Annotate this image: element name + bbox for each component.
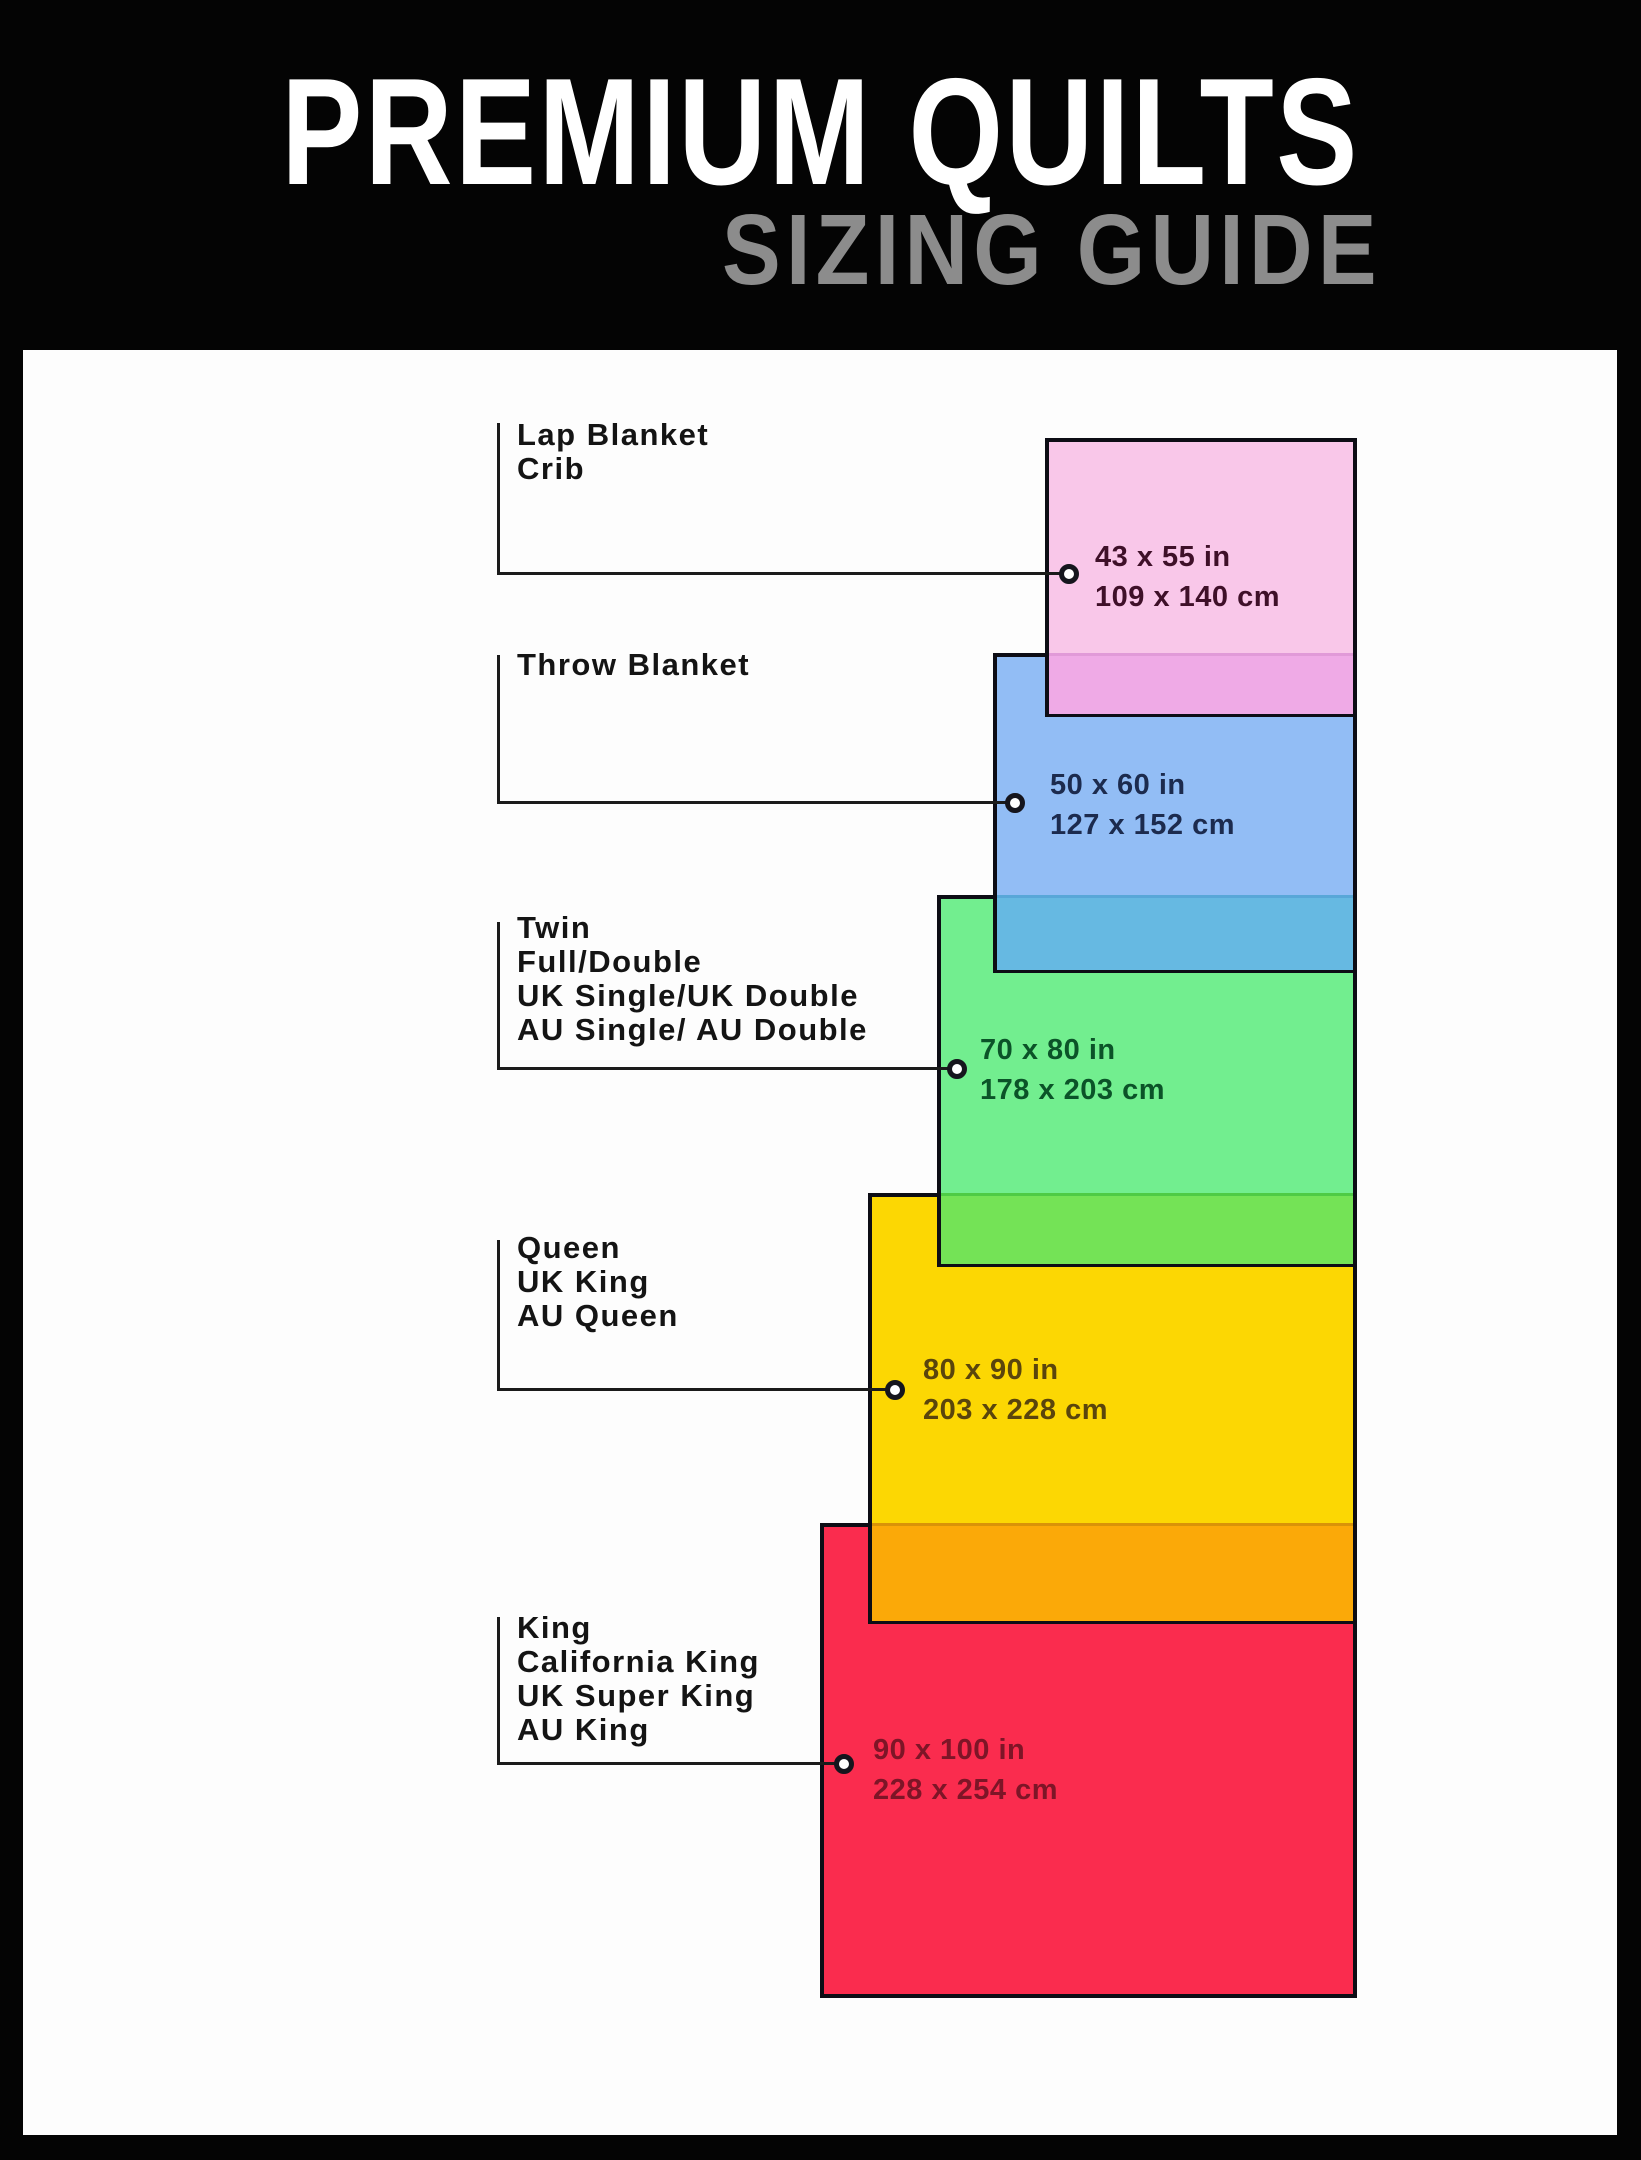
marker-circle-king-california-king: [834, 1754, 854, 1774]
marker-circle-queen-uk-king: [885, 1380, 905, 1400]
overlap-seam-lap-blanket-crib: [1049, 653, 1353, 656]
overlap-seam-queen-uk-king: [872, 1523, 1353, 1526]
size-cm-queen-uk-king: 203 x 228 cm: [923, 1390, 1108, 1430]
size-label-king-california-king: 90 x 100 in228 x 254 cm: [873, 1730, 1058, 1810]
size-inches-throw-blanket: 50 x 60 in: [1050, 765, 1235, 805]
page-subtitle: SIZING GUIDE: [722, 200, 1382, 300]
connector-queen-uk-king: [497, 1240, 886, 1391]
overlap-strip-queen-uk-king: [872, 1523, 1353, 1621]
connector-throw-blanket: [497, 655, 1006, 804]
marker-circle-lap-blanket-crib: [1059, 564, 1079, 584]
size-cm-throw-blanket: 127 x 152 cm: [1050, 805, 1235, 845]
marker-circle-twin-full-double: [947, 1059, 967, 1079]
overlap-strip-twin-full-double: [941, 1193, 1353, 1264]
overlap-seam-twin-full-double: [941, 1193, 1353, 1196]
size-inches-lap-blanket-crib: 43 x 55 in: [1095, 537, 1280, 577]
size-label-queen-uk-king: 80 x 90 in203 x 228 cm: [923, 1350, 1108, 1430]
connector-king-california-king: [497, 1617, 835, 1765]
size-label-lap-blanket-crib: 43 x 55 in109 x 140 cm: [1095, 537, 1280, 617]
connector-lap-blanket-crib: [497, 423, 1060, 575]
quilt-rect-lap-blanket-crib: 43 x 55 in109 x 140 cm: [1045, 438, 1357, 717]
size-label-throw-blanket: 50 x 60 in127 x 152 cm: [1050, 765, 1235, 845]
size-inches-king-california-king: 90 x 100 in: [873, 1730, 1058, 1770]
overlap-strip-lap-blanket-crib: [1049, 653, 1353, 714]
size-cm-king-california-king: 228 x 254 cm: [873, 1770, 1058, 1810]
size-cm-twin-full-double: 178 x 203 cm: [980, 1070, 1165, 1110]
size-inches-twin-full-double: 70 x 80 in: [980, 1030, 1165, 1070]
size-cm-lap-blanket-crib: 109 x 140 cm: [1095, 577, 1280, 617]
overlap-seam-throw-blanket: [997, 895, 1353, 898]
overlap-strip-throw-blanket: [997, 895, 1353, 970]
sizing-guide-infographic: PREMIUM QUILTS SIZING GUIDE 43 x 55 in10…: [0, 0, 1641, 2160]
size-inches-queen-uk-king: 80 x 90 in: [923, 1350, 1108, 1390]
connector-twin-full-double: [497, 922, 948, 1070]
page-title: PREMIUM QUILTS: [164, 56, 1477, 208]
size-label-twin-full-double: 70 x 80 in178 x 203 cm: [980, 1030, 1165, 1110]
marker-circle-throw-blanket: [1005, 793, 1025, 813]
